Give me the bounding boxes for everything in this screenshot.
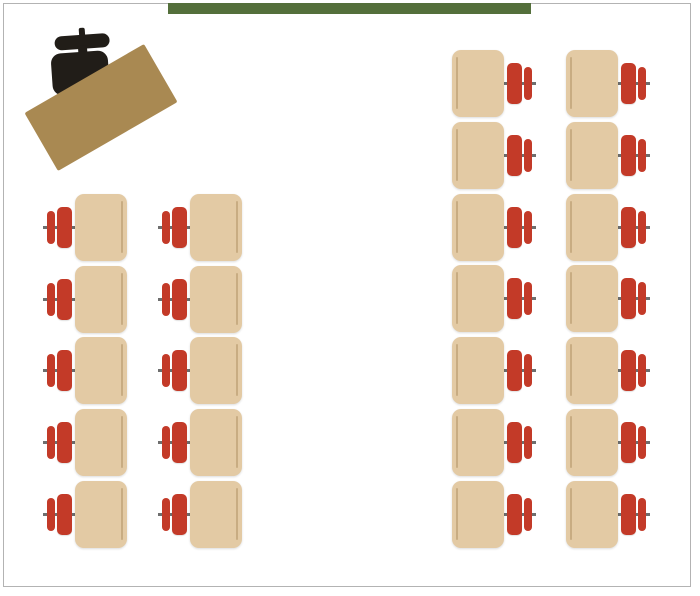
student-desk (566, 481, 618, 548)
student-desk (452, 337, 504, 404)
desk-chair-unit (42, 194, 127, 261)
student-desk (190, 481, 242, 548)
student-desk (190, 409, 242, 476)
student-desk (190, 194, 242, 261)
chair-backrest (524, 426, 532, 459)
desk-chair-unit (452, 194, 537, 261)
desk-chair-unit (452, 409, 537, 476)
desk-edge-line (456, 201, 458, 253)
desk-chair-unit (157, 481, 242, 548)
desk-edge-line (570, 344, 572, 396)
desk-edge-line (456, 344, 458, 396)
chair-seat (621, 422, 636, 463)
chalkboard-bar (168, 3, 531, 14)
desk-edge-line (121, 416, 123, 468)
student-desk (566, 50, 618, 117)
student-desk (75, 481, 127, 548)
student-desk (75, 194, 127, 261)
desk-chair-unit (566, 409, 651, 476)
chair-backrest (638, 139, 646, 172)
chair-seat (172, 279, 187, 320)
chair-seat (172, 350, 187, 391)
classroom-layout-diagram (0, 0, 700, 596)
chair-backrest (162, 498, 170, 531)
chair-seat (621, 207, 636, 248)
chair-backrest (162, 211, 170, 244)
desk-edge-line (570, 416, 572, 468)
desk-chair-unit (452, 337, 537, 404)
desk-edge-line (236, 273, 238, 325)
desk-chair-unit (452, 50, 537, 117)
student-desk (190, 337, 242, 404)
chair-seat (507, 422, 522, 463)
desk-chair-unit (452, 481, 537, 548)
student-desk (566, 122, 618, 189)
chair-backrest (524, 354, 532, 387)
desk-edge-line (456, 57, 458, 109)
student-desk (452, 481, 504, 548)
chair-backrest (47, 426, 55, 459)
chair-seat (621, 278, 636, 319)
chair-seat (172, 422, 187, 463)
chair-seat (57, 207, 72, 248)
student-desk (566, 409, 618, 476)
desk-chair-unit (157, 266, 242, 333)
chair-backrest (47, 354, 55, 387)
chair-backrest (638, 282, 646, 315)
chair-backrest (638, 354, 646, 387)
desk-edge-line (121, 201, 123, 253)
chair-backrest (524, 67, 532, 100)
chair-seat (621, 63, 636, 104)
chair-seat (621, 494, 636, 535)
desk-chair-unit (566, 50, 651, 117)
teacher-chair-headrest-knob (79, 28, 86, 38)
chair-backrest (162, 426, 170, 459)
desk-chair-unit (157, 337, 242, 404)
desk-edge-line (570, 201, 572, 253)
desk-chair-unit (566, 337, 651, 404)
chair-seat (57, 350, 72, 391)
chair-backrest (524, 139, 532, 172)
chair-seat (621, 350, 636, 391)
desk-edge-line (236, 344, 238, 396)
chair-backrest (47, 498, 55, 531)
desk-chair-unit (452, 265, 537, 332)
chair-seat (507, 278, 522, 319)
chair-seat (172, 207, 187, 248)
chair-seat (172, 494, 187, 535)
chair-seat (507, 494, 522, 535)
chair-seat (57, 279, 72, 320)
student-desk (190, 266, 242, 333)
chair-seat (57, 422, 72, 463)
desk-edge-line (121, 273, 123, 325)
desk-edge-line (456, 488, 458, 540)
desk-chair-unit (566, 481, 651, 548)
student-desk (566, 194, 618, 261)
chair-backrest (524, 498, 532, 531)
desk-chair-unit (42, 409, 127, 476)
student-desk (75, 337, 127, 404)
chair-backrest (47, 211, 55, 244)
chair-backrest (638, 498, 646, 531)
desk-edge-line (236, 488, 238, 540)
student-desk (566, 265, 618, 332)
chair-seat (57, 494, 72, 535)
student-desk (452, 265, 504, 332)
student-desk (452, 122, 504, 189)
desk-chair-unit (42, 337, 127, 404)
desk-edge-line (456, 272, 458, 324)
chair-backrest (524, 282, 532, 315)
student-desk (452, 194, 504, 261)
desk-chair-unit (566, 122, 651, 189)
desk-edge-line (121, 488, 123, 540)
desk-chair-unit (157, 194, 242, 261)
chair-backrest (638, 67, 646, 100)
desk-edge-line (121, 344, 123, 396)
desk-edge-line (570, 57, 572, 109)
desk-edge-line (570, 488, 572, 540)
chair-backrest (162, 354, 170, 387)
desk-edge-line (570, 272, 572, 324)
chair-backrest (162, 283, 170, 316)
desk-chair-unit (452, 122, 537, 189)
desk-chair-unit (157, 409, 242, 476)
chair-seat (507, 63, 522, 104)
student-desk (452, 50, 504, 117)
chair-backrest (47, 283, 55, 316)
student-desk (566, 337, 618, 404)
student-desk (75, 409, 127, 476)
chair-backrest (638, 426, 646, 459)
chair-seat (621, 135, 636, 176)
chair-seat (507, 350, 522, 391)
desk-edge-line (570, 129, 572, 181)
desk-edge-line (236, 201, 238, 253)
chair-seat (507, 207, 522, 248)
desk-chair-unit (42, 481, 127, 548)
desk-edge-line (456, 129, 458, 181)
chair-seat (507, 135, 522, 176)
desk-chair-unit (566, 265, 651, 332)
desk-edge-line (236, 416, 238, 468)
desk-edge-line (456, 416, 458, 468)
desk-chair-unit (42, 266, 127, 333)
chair-backrest (524, 211, 532, 244)
student-desk (452, 409, 504, 476)
student-desk (75, 266, 127, 333)
chair-backrest (638, 211, 646, 244)
desk-chair-unit (566, 194, 651, 261)
